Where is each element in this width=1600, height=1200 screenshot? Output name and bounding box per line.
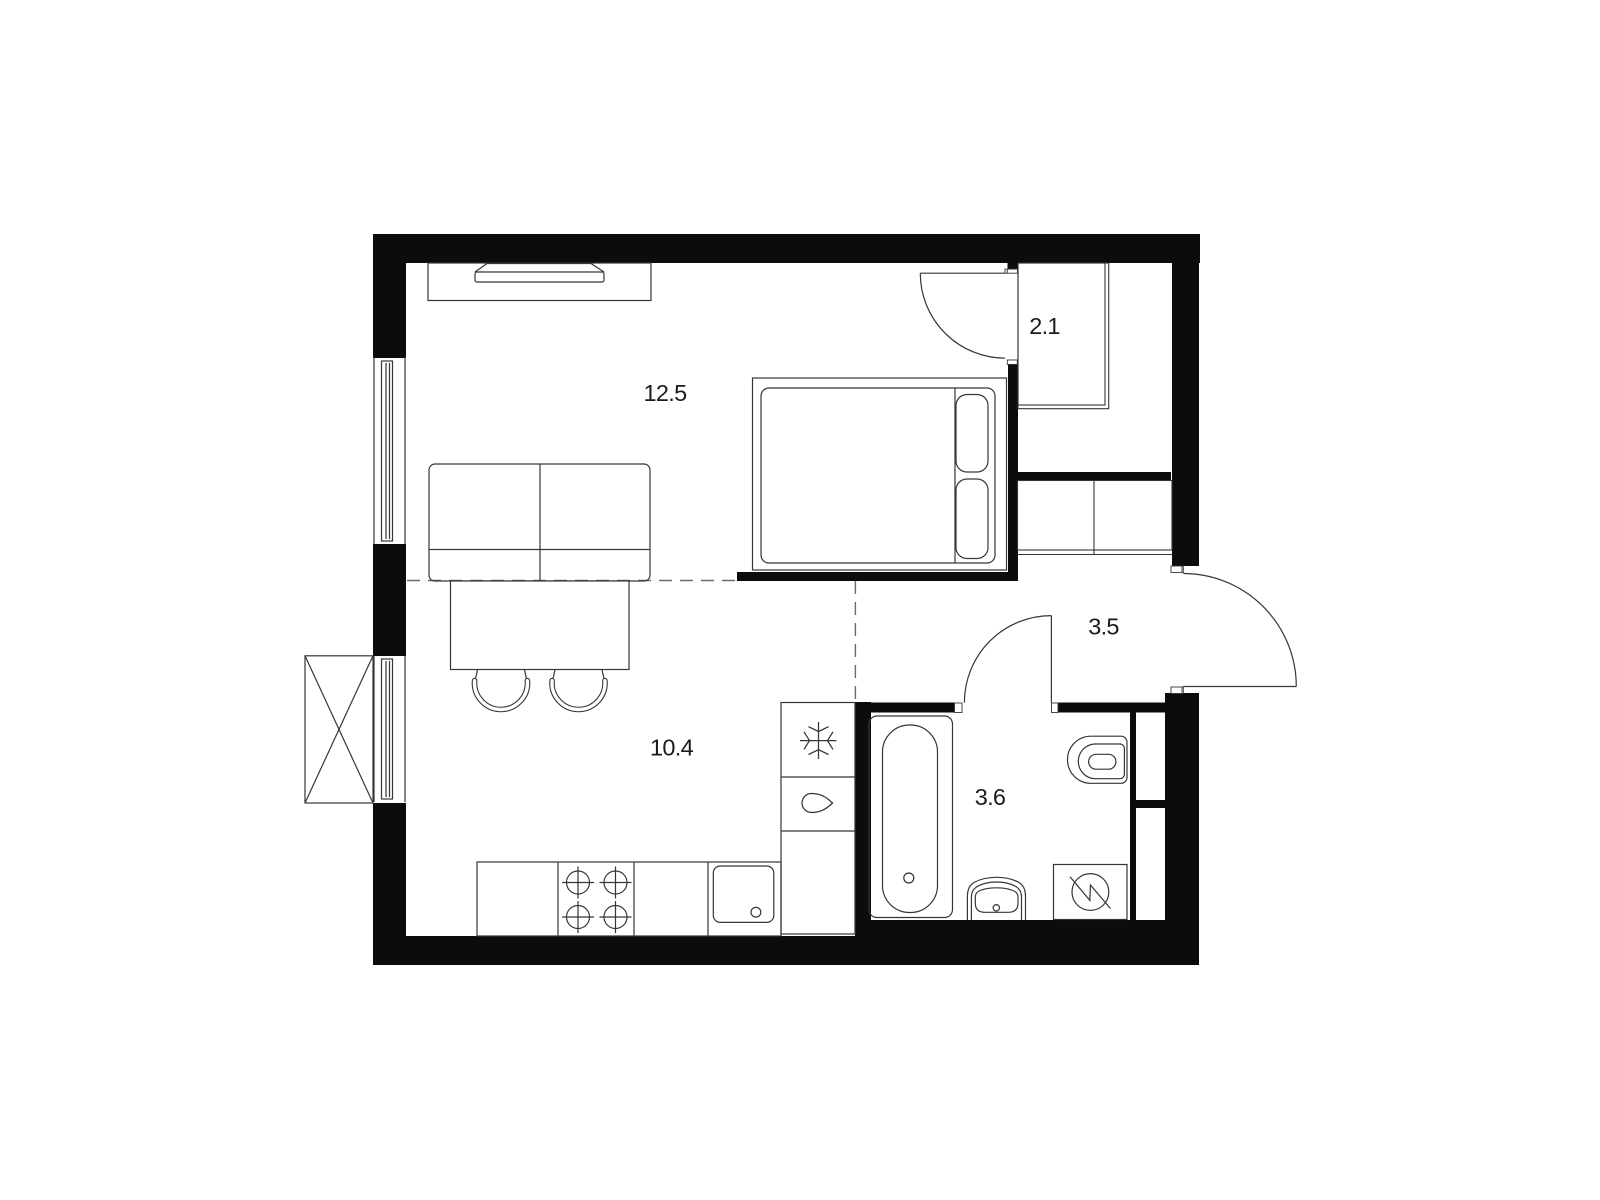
svg-text:3.6: 3.6 (975, 784, 1006, 810)
svg-text:2.1: 2.1 (1029, 313, 1060, 339)
svg-text:12.5: 12.5 (644, 380, 688, 406)
svg-text:10.4: 10.4 (650, 734, 694, 760)
svg-text:3.5: 3.5 (1088, 614, 1119, 640)
